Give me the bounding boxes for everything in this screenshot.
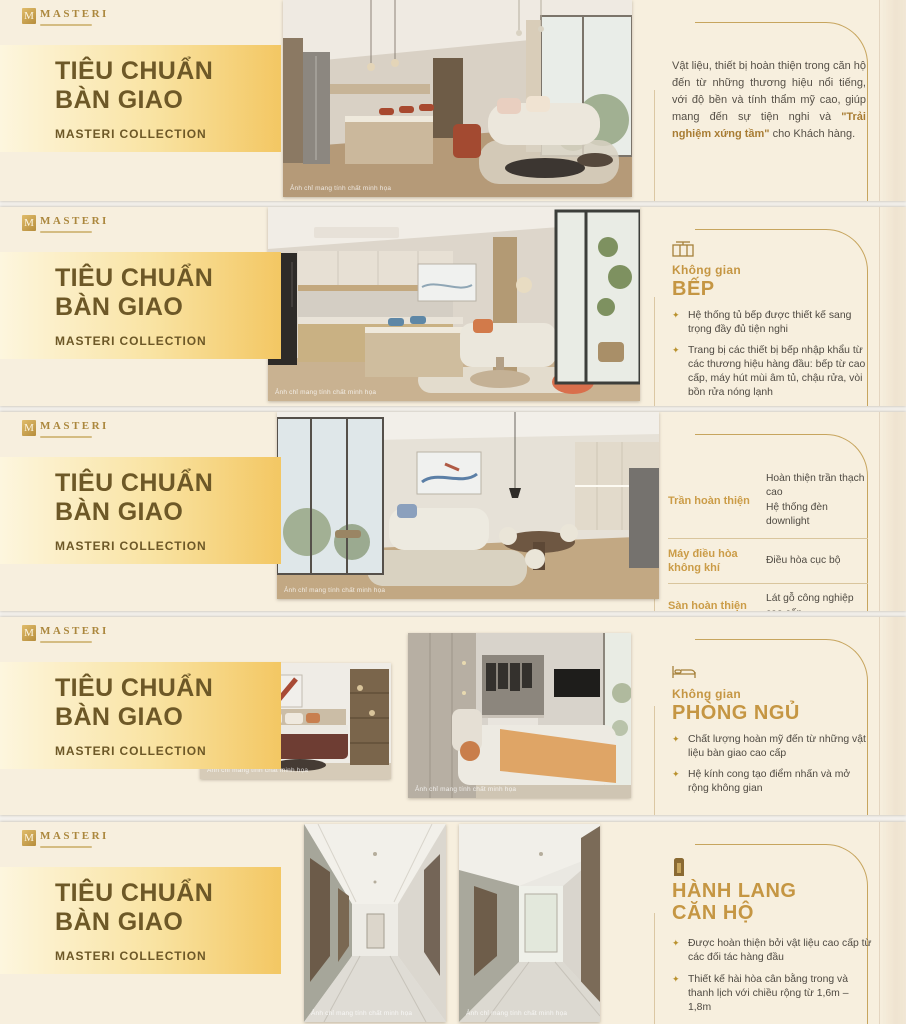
masteri-logo: M MASTERI [22, 215, 109, 233]
bullet-item: ✦Hệ kính cong tạo điểm nhấn và mở rộng k… [672, 768, 870, 796]
diamond-bullet-icon: ✦ [672, 309, 682, 337]
living-room-illustration [283, 0, 632, 197]
spec-row-aircon: Máy điều hòa không khí Điều hòa cục bộ [668, 539, 868, 585]
kitchen-panel: Không gian BẾP ✦Hệ thống tủ bếp được thi… [672, 241, 870, 406]
section-heading: HÀNH LANGCĂN HỘ [672, 880, 874, 925]
slide-specs: M MASTERI TIÊU CHUẨNBÀN GIAO MASTERI COL… [0, 412, 906, 611]
photo-hallway-2: Ảnh chỉ mang tính chất minh họa [459, 824, 600, 1022]
photo-caption: Ảnh chỉ mang tính chất minh họa [275, 389, 376, 396]
masteri-logo-tagline [40, 846, 92, 848]
slide-title: TIÊU CHUẨNBÀN GIAO [55, 57, 281, 116]
photo-caption: Ảnh chỉ mang tính chất minh họa [284, 587, 385, 594]
masteri-logo-mark-icon: M [22, 625, 36, 641]
slide-intro: M MASTERI TIÊU CHUẨNBÀN GIAO MASTERI COL… [0, 0, 906, 201]
section-eyebrow: Không gian [672, 263, 870, 277]
hallway-panel: HÀNH LANGCĂN HỘ ✦Được hoàn thiện bởi vật… [672, 858, 874, 1024]
diamond-bullet-icon: ✦ [672, 768, 682, 796]
bedroom-panel: Không gian PHÒNG NGỦ ✦Chất lượng hoàn mỹ… [672, 665, 870, 796]
spec-row-floor: Sàn hoàn thiện Lát gỗ công nghiệp cao cấ… [668, 584, 868, 611]
kitchen-bullet-list: ✦Hệ thống tủ bếp được thiết kế sang trọn… [672, 309, 870, 406]
slide-subtitle: MASTERI COLLECTION [55, 334, 281, 348]
masteri-logo: M MASTERI [22, 8, 109, 26]
masteri-logo-mark-icon: M [22, 420, 36, 436]
slide-bedroom: M MASTERI TIÊU CHUẨNBÀN GIAO MASTERI COL… [0, 617, 906, 815]
section-heading: BẾP [672, 278, 870, 300]
slide-title: TIÊU CHUẨNBÀN GIAO [55, 674, 281, 733]
bullet-item: ✦Trang bị các thiết bị bếp nhập khẩu từ … [672, 344, 870, 399]
photo-living-dining: Ảnh chỉ mang tính chất minh họa [277, 412, 659, 599]
masteri-logo-mark-icon: M [22, 215, 36, 231]
bedroom-bullet-list: ✦Chất lượng hoàn mỹ đến từ những vật liệ… [672, 733, 870, 795]
masteri-logo-mark-icon: M [22, 8, 36, 24]
title-banner: TIÊU CHUẨNBÀN GIAO MASTERI COLLECTION [0, 457, 281, 564]
bullet-item: ✦Được hoàn thiện bởi vật liệu cao cấp từ… [672, 937, 874, 965]
left-accent-line [654, 706, 655, 815]
slide-subtitle: MASTERI COLLECTION [55, 127, 281, 141]
title-banner: TIÊU CHUẨNBÀN GIAO MASTERI COLLECTION [0, 252, 281, 359]
kitchen-illustration [268, 207, 640, 401]
masteri-logo-tagline [40, 231, 92, 233]
left-accent-line [654, 913, 655, 1024]
door-icon [672, 858, 874, 874]
bullet-item: ✦Chất lượng hoàn mỹ đến từ những vật liệ… [672, 733, 870, 761]
photo-caption: Ảnh chỉ mang tính chất minh họa [466, 1010, 567, 1017]
slide-hallway: M MASTERI TIÊU CHUẨNBÀN GIAO MASTERI COL… [0, 822, 906, 1024]
masteri-logo-mark-icon: M [22, 830, 36, 846]
slide-subtitle: MASTERI COLLECTION [55, 539, 281, 553]
intro-paragraph: Vật liệu, thiết bị hoàn thiện trong căn … [672, 58, 866, 143]
slide-title: TIÊU CHUẨNBÀN GIAO [55, 879, 281, 938]
title-banner: TIÊU CHUẨNBÀN GIAO MASTERI COLLECTION [0, 867, 281, 974]
masteri-logo-text: MASTERI [40, 8, 109, 21]
photo-living-room: Ảnh chỉ mang tính chất minh họa [283, 0, 632, 197]
intro-panel: Vật liệu, thiết bị hoàn thiện trong căn … [672, 58, 866, 143]
spec-panel: Trần hoàn thiện Hoàn thiện trần thạch ca… [668, 464, 868, 611]
slide-subtitle: MASTERI COLLECTION [55, 744, 281, 758]
masteri-logo-tagline [40, 436, 92, 438]
slide-title: TIÊU CHUẨNBÀN GIAO [55, 469, 281, 528]
title-banner: TIÊU CHUẨNBÀN GIAO MASTERI COLLECTION [0, 662, 281, 769]
left-accent-line [654, 90, 655, 201]
title-banner: TIÊU CHUẨNBÀN GIAO MASTERI COLLECTION [0, 45, 281, 152]
masteri-logo: M MASTERI [22, 830, 109, 848]
masteri-logo-text: MASTERI [40, 625, 109, 638]
bullet-item: ✦Hệ thống tủ bếp được thiết kế sang trọn… [672, 309, 870, 337]
slide-subtitle: MASTERI COLLECTION [55, 949, 281, 963]
diamond-bullet-icon: ✦ [672, 937, 682, 965]
diamond-bullet-icon: ✦ [672, 344, 682, 399]
slide-title: TIÊU CHUẨNBÀN GIAO [55, 264, 281, 323]
bullet-item: ✦Thiết kế hài hòa cân bằng trong và than… [672, 973, 874, 1014]
hallway-bullet-list: ✦Được hoàn thiện bởi vật liệu cao cấp từ… [672, 937, 874, 1024]
diamond-bullet-icon: ✦ [672, 973, 682, 1014]
photo-hallway-1: Ảnh chỉ mang tính chất minh họa [304, 824, 446, 1022]
left-accent-line [654, 297, 655, 406]
hallway-2-illustration [459, 824, 600, 1022]
masteri-logo: M MASTERI [22, 625, 109, 643]
kitchen-icon [672, 241, 870, 257]
photo-caption: Ảnh chỉ mang tính chất minh họa [415, 786, 516, 793]
bedroom-2-illustration [408, 633, 631, 798]
photo-kitchen: Ảnh chỉ mang tính chất minh họa [268, 207, 640, 401]
section-eyebrow: Không gian [672, 687, 870, 701]
masteri-logo-text: MASTERI [40, 215, 109, 228]
photo-bedroom-2: Ảnh chỉ mang tính chất minh họa [408, 633, 631, 798]
brochure-page: M MASTERI TIÊU CHUẨNBÀN GIAO MASTERI COL… [0, 0, 906, 1024]
bed-icon [672, 665, 870, 681]
section-heading: PHÒNG NGỦ [672, 702, 870, 724]
masteri-logo-text: MASTERI [40, 830, 109, 843]
photo-caption: Ảnh chỉ mang tính chất minh họa [311, 1010, 412, 1017]
hallway-1-illustration [304, 824, 446, 1022]
spec-row-ceiling: Trần hoàn thiện Hoàn thiện trần thạch ca… [668, 464, 868, 539]
masteri-logo: M MASTERI [22, 420, 109, 438]
masteri-logo-tagline [40, 641, 92, 643]
slide-kitchen: M MASTERI TIÊU CHUẨNBÀN GIAO MASTERI COL… [0, 207, 906, 406]
masteri-logo-text: MASTERI [40, 420, 109, 433]
living-dining-illustration [277, 412, 659, 599]
diamond-bullet-icon: ✦ [672, 733, 682, 761]
masteri-logo-tagline [40, 24, 92, 26]
photo-caption: Ảnh chỉ mang tính chất minh họa [290, 185, 391, 192]
